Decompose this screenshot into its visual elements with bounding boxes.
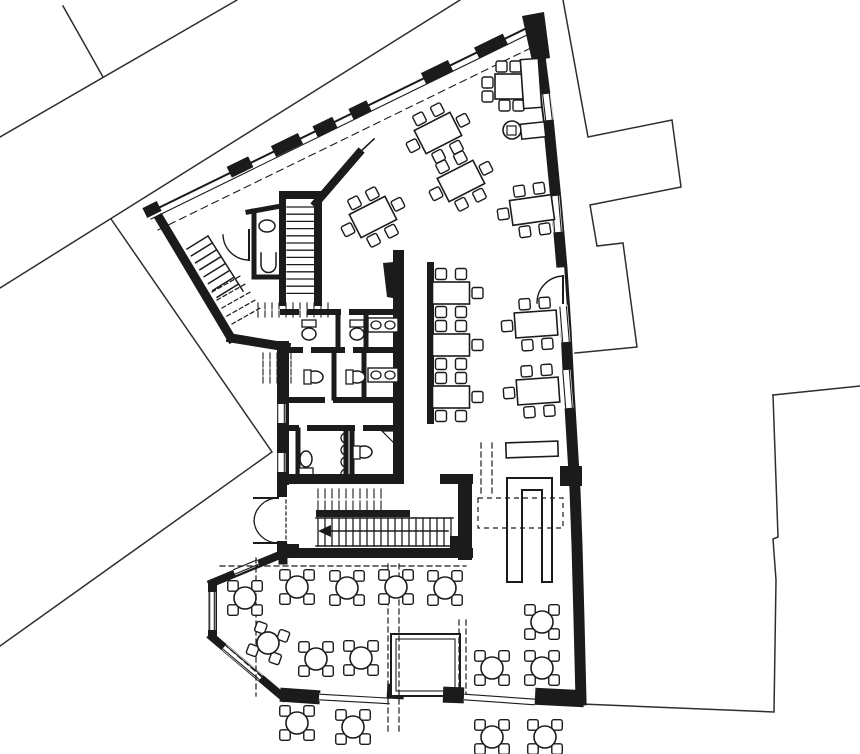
table-top — [531, 611, 553, 633]
sideboard-bench — [506, 441, 558, 458]
chair — [344, 665, 355, 676]
chair — [330, 595, 341, 606]
table-top — [481, 726, 503, 748]
conservatory-wall — [443, 687, 465, 704]
chair — [549, 629, 560, 640]
chair — [552, 720, 563, 731]
chair — [436, 373, 447, 384]
chair — [539, 297, 551, 309]
chair — [428, 595, 439, 606]
table-top — [516, 377, 560, 405]
service-stand-top — [507, 126, 516, 135]
toilet-tank — [350, 320, 364, 327]
table-top — [286, 712, 308, 734]
chair — [456, 359, 467, 370]
table-top — [342, 716, 364, 738]
table-top — [433, 334, 470, 356]
window — [563, 305, 566, 342]
table-top — [433, 386, 470, 408]
chair — [497, 208, 509, 220]
chair — [524, 406, 536, 418]
toilet-tank — [299, 468, 313, 475]
chair — [299, 666, 310, 677]
chair — [228, 581, 239, 592]
chair — [280, 570, 291, 581]
chair — [403, 570, 414, 581]
stair-hall-wall — [277, 474, 404, 484]
table-top — [434, 577, 456, 599]
table-top — [336, 577, 358, 599]
chair — [539, 223, 551, 235]
conservatory-wall — [280, 688, 321, 705]
chair — [456, 411, 467, 422]
chair — [528, 720, 539, 731]
chair — [472, 392, 483, 403]
sink — [259, 220, 275, 232]
chair — [472, 288, 483, 299]
window — [555, 196, 558, 232]
stair-handrail — [316, 510, 410, 517]
chair — [482, 77, 493, 88]
chair — [525, 675, 536, 686]
wall-pier — [560, 466, 582, 486]
table-top — [350, 647, 372, 669]
stair-wall — [314, 191, 322, 306]
chair — [549, 651, 560, 662]
chair — [330, 571, 341, 582]
chair — [521, 365, 533, 377]
chair — [280, 706, 291, 717]
stair-hall-wall — [277, 484, 287, 497]
chair — [436, 411, 447, 422]
chair — [304, 706, 315, 717]
chair — [525, 605, 536, 616]
sink — [385, 321, 395, 329]
chair — [452, 571, 463, 582]
chair — [368, 665, 379, 676]
chair — [252, 605, 263, 616]
chair — [503, 387, 515, 399]
chair — [499, 720, 510, 731]
chair — [304, 730, 315, 741]
table-top — [305, 648, 327, 670]
chair — [304, 570, 315, 581]
sink — [371, 371, 381, 379]
chair — [499, 651, 510, 662]
chair — [525, 629, 536, 640]
chair — [549, 605, 560, 616]
chair — [360, 734, 371, 745]
chair — [354, 595, 365, 606]
chair — [499, 100, 510, 111]
window — [464, 697, 535, 702]
chair — [519, 298, 531, 310]
table-top — [509, 195, 554, 226]
square-table — [495, 74, 523, 99]
chair — [456, 321, 467, 332]
chair — [336, 710, 347, 721]
chair — [436, 359, 447, 370]
table-top — [481, 657, 503, 679]
chair — [513, 100, 524, 111]
chair — [436, 269, 447, 280]
chair — [496, 61, 507, 72]
chair — [522, 339, 534, 351]
chair — [368, 641, 379, 652]
chair — [280, 594, 291, 605]
chair — [436, 321, 447, 332]
table-top — [433, 282, 470, 304]
chair — [456, 269, 467, 280]
porch-inner-line — [396, 639, 455, 691]
window — [546, 94, 549, 120]
chair — [323, 642, 334, 653]
toilet-tank — [353, 446, 360, 459]
toilet-tank — [302, 320, 316, 327]
toilet-tank — [304, 370, 311, 384]
service-counter — [520, 122, 545, 139]
conservatory-wall — [535, 688, 585, 708]
chair — [542, 338, 554, 350]
sofa-bench — [520, 58, 541, 108]
chair — [541, 364, 553, 376]
stair-wall — [279, 198, 286, 306]
toilet — [300, 451, 312, 467]
chair — [544, 405, 556, 417]
toilet — [350, 328, 364, 340]
chair — [354, 571, 365, 582]
table-top — [385, 576, 407, 598]
chair — [403, 594, 414, 605]
chair — [475, 720, 486, 731]
chair — [336, 734, 347, 745]
table-top — [286, 576, 308, 598]
chair — [475, 675, 486, 686]
table-top — [534, 726, 556, 748]
chair — [379, 594, 390, 605]
chair — [533, 182, 545, 194]
chair — [428, 571, 439, 582]
chair — [299, 642, 310, 653]
table-top — [514, 310, 558, 338]
chair — [499, 675, 510, 686]
table-top — [531, 657, 553, 679]
toilet — [302, 328, 316, 340]
chair — [452, 595, 463, 606]
chair — [482, 91, 493, 102]
chair — [280, 730, 291, 741]
floor-plan — [0, 0, 860, 754]
chair — [344, 641, 355, 652]
chair — [379, 570, 390, 581]
chair — [549, 675, 560, 686]
stair-hall-wall — [450, 536, 472, 558]
table-top — [234, 587, 256, 609]
window — [566, 370, 569, 408]
chair — [510, 61, 521, 72]
chair — [436, 307, 447, 318]
chair — [360, 710, 371, 721]
stair-hall-wall — [277, 548, 473, 558]
chair — [323, 666, 334, 677]
sink — [385, 371, 395, 379]
chair — [472, 340, 483, 351]
toilet-tank — [346, 370, 353, 384]
chair — [513, 185, 525, 197]
chair — [252, 581, 263, 592]
chair — [501, 320, 513, 332]
chair — [525, 651, 536, 662]
chair — [456, 307, 467, 318]
floor-plan-canvas — [0, 0, 860, 754]
chair — [456, 373, 467, 384]
chair — [519, 225, 531, 237]
sink — [371, 321, 381, 329]
chair — [228, 605, 239, 616]
chair — [475, 651, 486, 662]
chair — [304, 594, 315, 605]
